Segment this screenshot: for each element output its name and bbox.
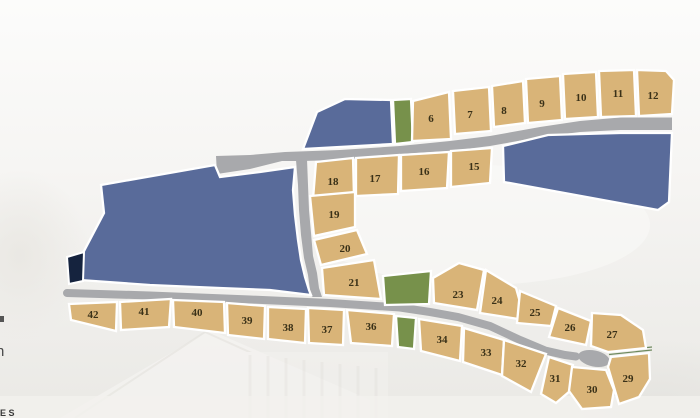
- svg-text:30: 30: [587, 384, 599, 396]
- svg-text:42: 42: [88, 309, 100, 321]
- svg-text:26: 26: [565, 322, 577, 334]
- svg-text:24: 24: [492, 295, 504, 307]
- svg-text:33: 33: [481, 347, 493, 359]
- svg-text:15: 15: [469, 161, 481, 173]
- svg-text:39: 39: [242, 315, 254, 327]
- svg-text:n: n: [0, 343, 4, 360]
- svg-text:11: 11: [613, 88, 623, 100]
- svg-text:16: 16: [419, 166, 431, 178]
- svg-text:8: 8: [501, 105, 507, 117]
- svg-text:34: 34: [437, 334, 449, 346]
- svg-text:10: 10: [576, 92, 588, 104]
- svg-text:37: 37: [322, 324, 334, 336]
- svg-text:6: 6: [428, 113, 434, 125]
- svg-text:18: 18: [328, 176, 340, 188]
- svg-text:29: 29: [623, 373, 635, 385]
- svg-text:38: 38: [283, 322, 295, 334]
- svg-text:23: 23: [453, 289, 465, 301]
- svg-text:31: 31: [550, 373, 561, 385]
- svg-text:19: 19: [329, 209, 341, 221]
- svg-text:9: 9: [539, 98, 545, 110]
- svg-text:12: 12: [648, 90, 660, 102]
- svg-text:27: 27: [607, 329, 619, 341]
- svg-text:41: 41: [139, 306, 150, 318]
- svg-text:7: 7: [467, 109, 473, 121]
- svg-text:17: 17: [370, 173, 382, 185]
- svg-text:21: 21: [349, 277, 360, 289]
- svg-text:25: 25: [530, 307, 542, 319]
- svg-text:40: 40: [192, 307, 204, 319]
- svg-text:36: 36: [366, 321, 378, 333]
- svg-text:20: 20: [340, 243, 352, 255]
- svg-text:32: 32: [516, 358, 528, 370]
- svg-text:E S: E S: [0, 408, 15, 418]
